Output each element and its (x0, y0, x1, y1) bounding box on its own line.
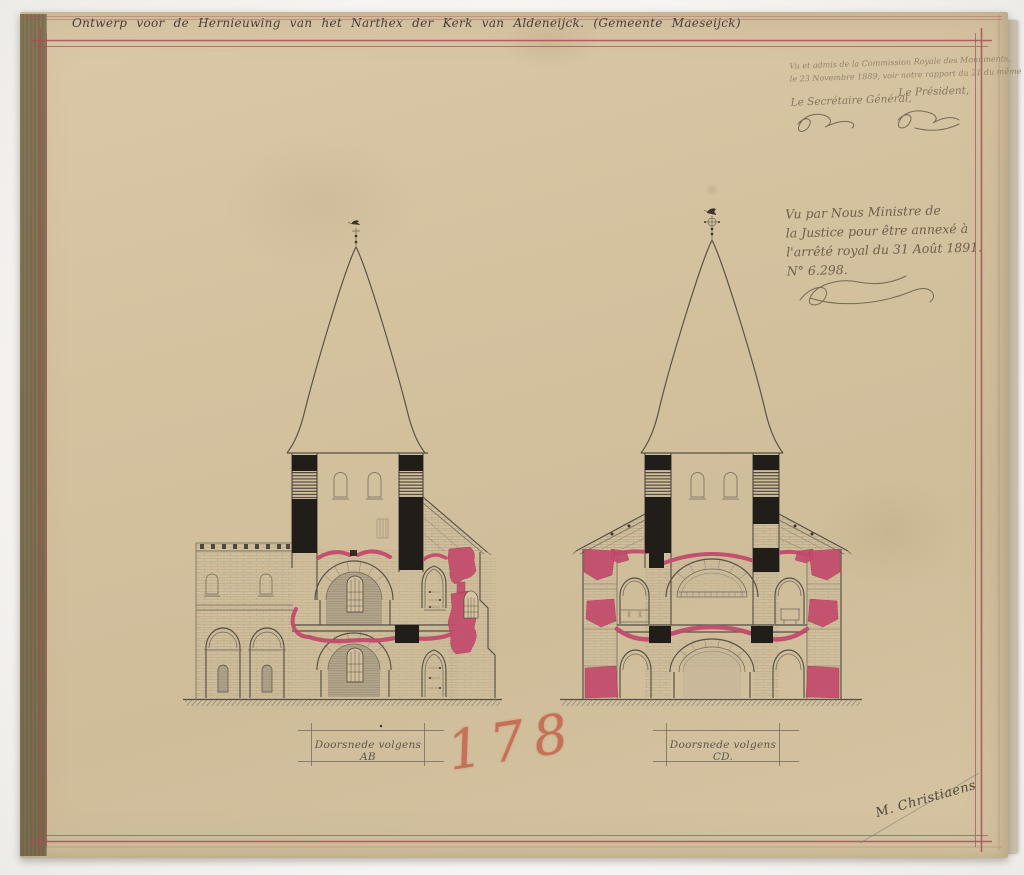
scan-background: Ontwerp voor de Hernieuwing van het Nart… (0, 0, 1024, 875)
section-label-ab: Doorsnede volgens AB (308, 739, 428, 763)
commission-approval-note: Vu et admis de la Commission Royale des … (789, 52, 1006, 112)
cross-weathervane-icon (704, 208, 720, 240)
weathervane-icon (348, 220, 360, 247)
ground-hatch-ab (185, 700, 500, 706)
ministerial-approval-note: Vu par Nous Ministre de la Justice pour … (785, 199, 983, 280)
sheet-title: Ontwerp voor de Hernieuwing van het Nart… (72, 16, 632, 30)
ground-hatch-cd (562, 700, 860, 706)
president-signature-scribble (898, 111, 959, 130)
section-drawing-cd (560, 208, 862, 706)
minister-signature-scribble (800, 276, 934, 305)
spire-ab (287, 247, 425, 453)
secretary-signature-scribble (798, 114, 854, 131)
spire-cd (641, 240, 783, 453)
secretary-label: Le Secrétaire Général, (790, 93, 911, 110)
section-label-cd: Doorsnede volgens CD. (663, 739, 783, 763)
section-drawing-ab (183, 220, 502, 706)
president-label: Le Président, (898, 85, 969, 100)
